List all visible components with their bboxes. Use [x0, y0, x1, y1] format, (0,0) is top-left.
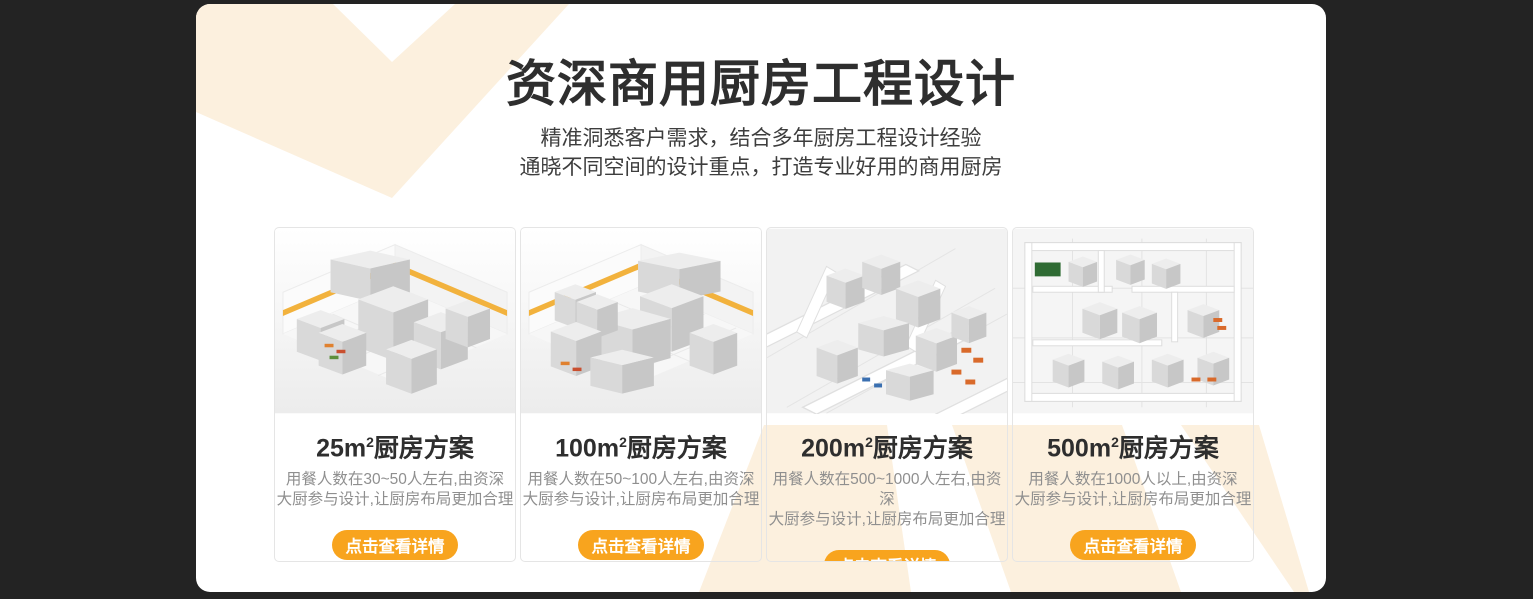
plan-desc-line-1: 用餐人数在500~1000人左右,由资深 [767, 470, 1007, 510]
plan-description: 用餐人数在1000人以上,由资深 大厨参与设计,让厨房布局更加合理 [1013, 470, 1253, 510]
kitchen-render-image-25sqm [275, 228, 515, 414]
plan-title: 500m2厨房方案 [1013, 427, 1253, 463]
content-panel: 资深商用厨房工程设计 精准洞悉客户需求，结合多年厨房工程设计经验 通晓不同空间的… [196, 4, 1326, 592]
plan-card-25sqm: 25m2厨房方案 用餐人数在30~50人左右,由资深 大厨参与设计,让厨房布局更… [274, 227, 516, 562]
plan-description: 用餐人数在50~100人左右,由资深 大厨参与设计,让厨房布局更加合理 [521, 470, 761, 510]
plan-desc-line-1: 用餐人数在1000人以上,由资深 [1013, 470, 1253, 490]
plan-size: 500m [1047, 434, 1111, 462]
kitchen-render-image-500sqm [1013, 228, 1253, 414]
subtitle-line-2: 通晓不同空间的设计重点，打造专业好用的商用厨房 [196, 153, 1326, 182]
section-title: 资深商用厨房工程设计 [196, 4, 1326, 112]
plan-card-200sqm: 200m2厨房方案 用餐人数在500~1000人左右,由资深 大厨参与设计,让厨… [766, 227, 1008, 562]
view-details-button[interactable]: 点击查看详情 [578, 530, 704, 560]
plan-size: 200m [801, 434, 865, 462]
plan-card-500sqm: 500m2厨房方案 用餐人数在1000人以上,由资深 大厨参与设计,让厨房布局更… [1012, 227, 1254, 562]
plan-description: 用餐人数在500~1000人左右,由资深 大厨参与设计,让厨房布局更加合理 [767, 470, 1007, 530]
plan-title: 100m2厨房方案 [521, 427, 761, 463]
section-content: 资深商用厨房工程设计 精准洞悉客户需求，结合多年厨房工程设计经验 通晓不同空间的… [196, 4, 1326, 592]
plan-desc-line-1: 用餐人数在50~100人左右,由资深 [521, 470, 761, 490]
plan-cards-row: 25m2厨房方案 用餐人数在30~50人左右,由资深 大厨参与设计,让厨房布局更… [274, 227, 1254, 562]
plan-card-body: 100m2厨房方案 用餐人数在50~100人左右,由资深 大厨参与设计,让厨房布… [521, 414, 761, 561]
view-details-button[interactable]: 点击查看详情 [824, 550, 950, 562]
plan-suffix: 厨房方案 [873, 434, 973, 462]
subtitle-line-1: 精准洞悉客户需求，结合多年厨房工程设计经验 [196, 124, 1326, 153]
plan-size: 100m [555, 434, 619, 462]
plan-desc-line-2: 大厨参与设计,让厨房布局更加合理 [521, 490, 761, 510]
plan-desc-line-2: 大厨参与设计,让厨房布局更加合理 [1013, 490, 1253, 510]
section-subtitle: 精准洞悉客户需求，结合多年厨房工程设计经验 通晓不同空间的设计重点，打造专业好用… [196, 124, 1326, 182]
plan-size-sup: 2 [619, 434, 627, 450]
plan-suffix: 厨房方案 [374, 434, 474, 462]
plan-desc-line-2: 大厨参与设计,让厨房布局更加合理 [767, 510, 1007, 530]
kitchen-render-image-100sqm [521, 228, 761, 414]
view-details-button[interactable]: 点击查看详情 [1070, 530, 1196, 560]
plan-title: 25m2厨房方案 [275, 427, 515, 463]
plan-suffix: 厨房方案 [627, 434, 727, 462]
plan-description: 用餐人数在30~50人左右,由资深 大厨参与设计,让厨房布局更加合理 [275, 470, 515, 510]
plan-card-body: 200m2厨房方案 用餐人数在500~1000人左右,由资深 大厨参与设计,让厨… [767, 414, 1007, 562]
plan-card-100sqm: 100m2厨房方案 用餐人数在50~100人左右,由资深 大厨参与设计,让厨房布… [520, 227, 762, 562]
plan-card-body: 25m2厨房方案 用餐人数在30~50人左右,由资深 大厨参与设计,让厨房布局更… [275, 414, 515, 561]
plan-size: 25m [316, 434, 366, 462]
plan-desc-line-1: 用餐人数在30~50人左右,由资深 [275, 470, 515, 490]
view-details-button[interactable]: 点击查看详情 [332, 530, 458, 560]
plan-card-body: 500m2厨房方案 用餐人数在1000人以上,由资深 大厨参与设计,让厨房布局更… [1013, 414, 1253, 561]
plan-title: 200m2厨房方案 [767, 427, 1007, 463]
plan-suffix: 厨房方案 [1119, 434, 1219, 462]
plan-size-sup: 2 [1111, 434, 1119, 450]
kitchen-render-image-200sqm [767, 228, 1007, 414]
plan-size-sup: 2 [865, 434, 873, 450]
plan-size-sup: 2 [366, 434, 374, 450]
plan-desc-line-2: 大厨参与设计,让厨房布局更加合理 [275, 490, 515, 510]
